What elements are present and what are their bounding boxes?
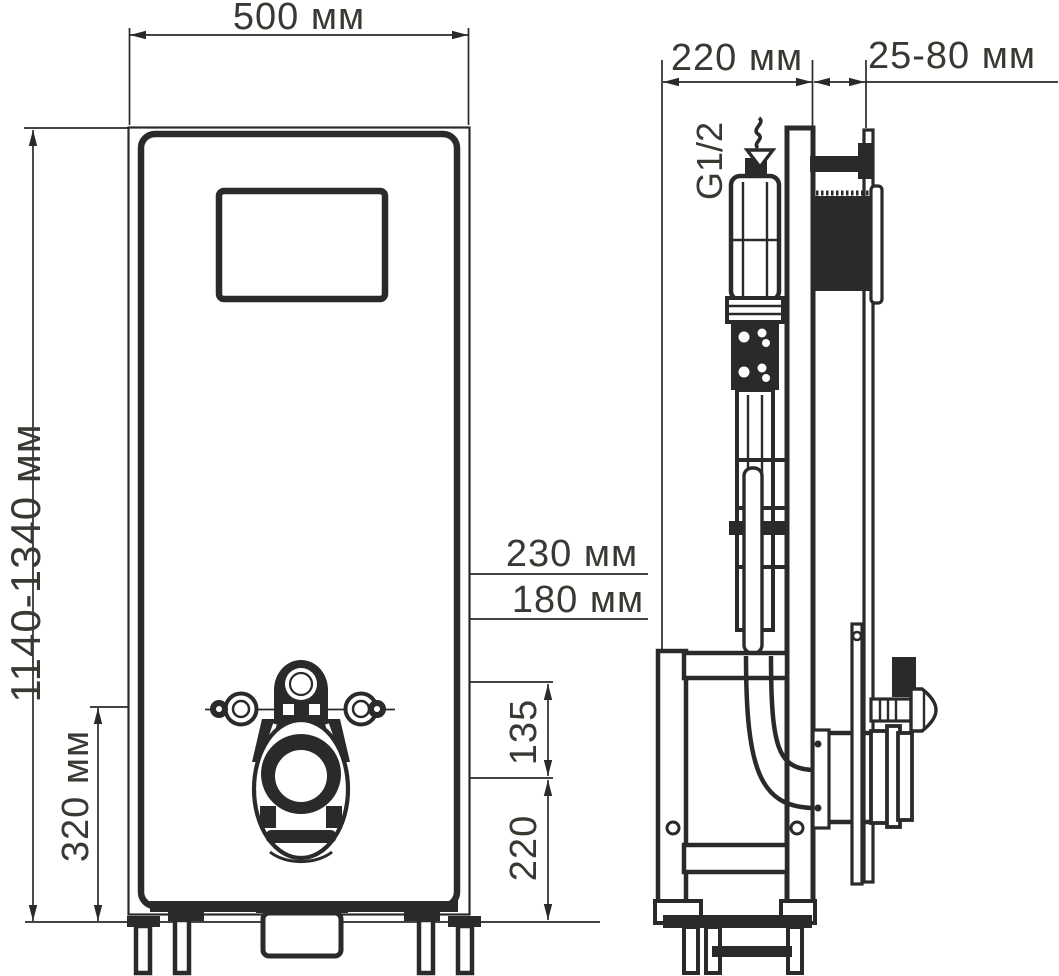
cistern-lock-box [731, 322, 779, 390]
front-width-label: 500 мм [233, 0, 365, 38]
foot-leg [175, 920, 189, 973]
valve-collar [727, 298, 783, 322]
side-depth-label: 220 мм [671, 37, 803, 79]
drain-box [263, 913, 341, 956]
side-foot-crossbar [712, 946, 792, 957]
arrowhead [29, 905, 37, 921]
arrowhead [29, 130, 37, 146]
tank-block-plate [871, 186, 882, 303]
arrowhead [94, 708, 102, 724]
water-squiggle-icon [756, 118, 761, 148]
stud-shaft [871, 699, 911, 721]
frame-bolt-hole [667, 822, 679, 834]
fixing-bolt-left [226, 694, 257, 725]
fixing-pin-right-hole [374, 706, 380, 712]
tank-block [815, 196, 870, 291]
arrowhead [544, 684, 552, 700]
front-height-label: 1140-1340 мм [2, 423, 49, 702]
arrowhead [452, 31, 468, 39]
side-view: G1/2 [655, 118, 936, 973]
holder-pin [815, 741, 822, 748]
arrowhead [796, 78, 812, 86]
drain-clamp-left [260, 806, 276, 828]
front-outer-span-label: 230 мм [506, 533, 638, 575]
arrowhead [849, 78, 865, 86]
outlet-flange-outer [898, 733, 912, 820]
dimension-wall-clearance-25-80: 25-80 мм [814, 35, 1058, 128]
dimension-inlet-outlet-135: 135 [503, 684, 552, 776]
fixing-pin-left-hole [216, 706, 222, 712]
foot-leg [136, 926, 150, 973]
fill-valve-body [731, 176, 779, 300]
front-lower-zone-label: 320 мм [55, 730, 97, 862]
dimension-outlet-height-220: 220 [503, 780, 552, 920]
front-view [127, 128, 481, 974]
front-outlet-height-label: 220 [503, 815, 545, 881]
drain-clamp-bar [266, 830, 336, 843]
flush-plate-window [219, 191, 385, 299]
front-inlet-outlet-label: 135 [503, 699, 545, 765]
installation-frame-drawing: 500 мм 1140-1340 мм 320 мм 230 мм 180 мм… [0, 0, 1059, 976]
arrowhead [814, 78, 830, 86]
thread-size-label: G1/2 [689, 122, 730, 200]
frame-bolt-hole [791, 822, 803, 834]
flush-pipe [744, 468, 762, 653]
arrowhead [544, 760, 552, 776]
arrowhead [130, 31, 146, 39]
front-fixing-span-label: 180 мм [512, 579, 644, 621]
wall-bracket-arm [810, 156, 862, 172]
lower-wall-bracket [852, 624, 862, 884]
lower-frame-bottom-rail [684, 845, 787, 872]
arrowhead [94, 905, 102, 921]
drain-opening [275, 750, 327, 802]
drain-clamp-right [326, 806, 342, 828]
foot-leg [419, 920, 433, 973]
dimension-width-500: 500 мм [130, 0, 469, 125]
wall-bracket-nub [858, 143, 872, 179]
arrowhead [663, 78, 679, 86]
arch-slot [283, 704, 294, 715]
side-foot-leg [684, 927, 698, 973]
foot-leg [458, 926, 472, 973]
technical-drawing-canvas: 500 мм 1140-1340 мм 320 мм 230 мм 180 мм… [0, 0, 1059, 976]
holder-pin [815, 805, 822, 812]
arrowhead [544, 904, 552, 920]
arch-slot [309, 704, 320, 715]
arrowhead [544, 780, 552, 796]
main-profile [787, 128, 813, 907]
side-wall-clearance-label: 25-80 мм [868, 35, 1036, 77]
